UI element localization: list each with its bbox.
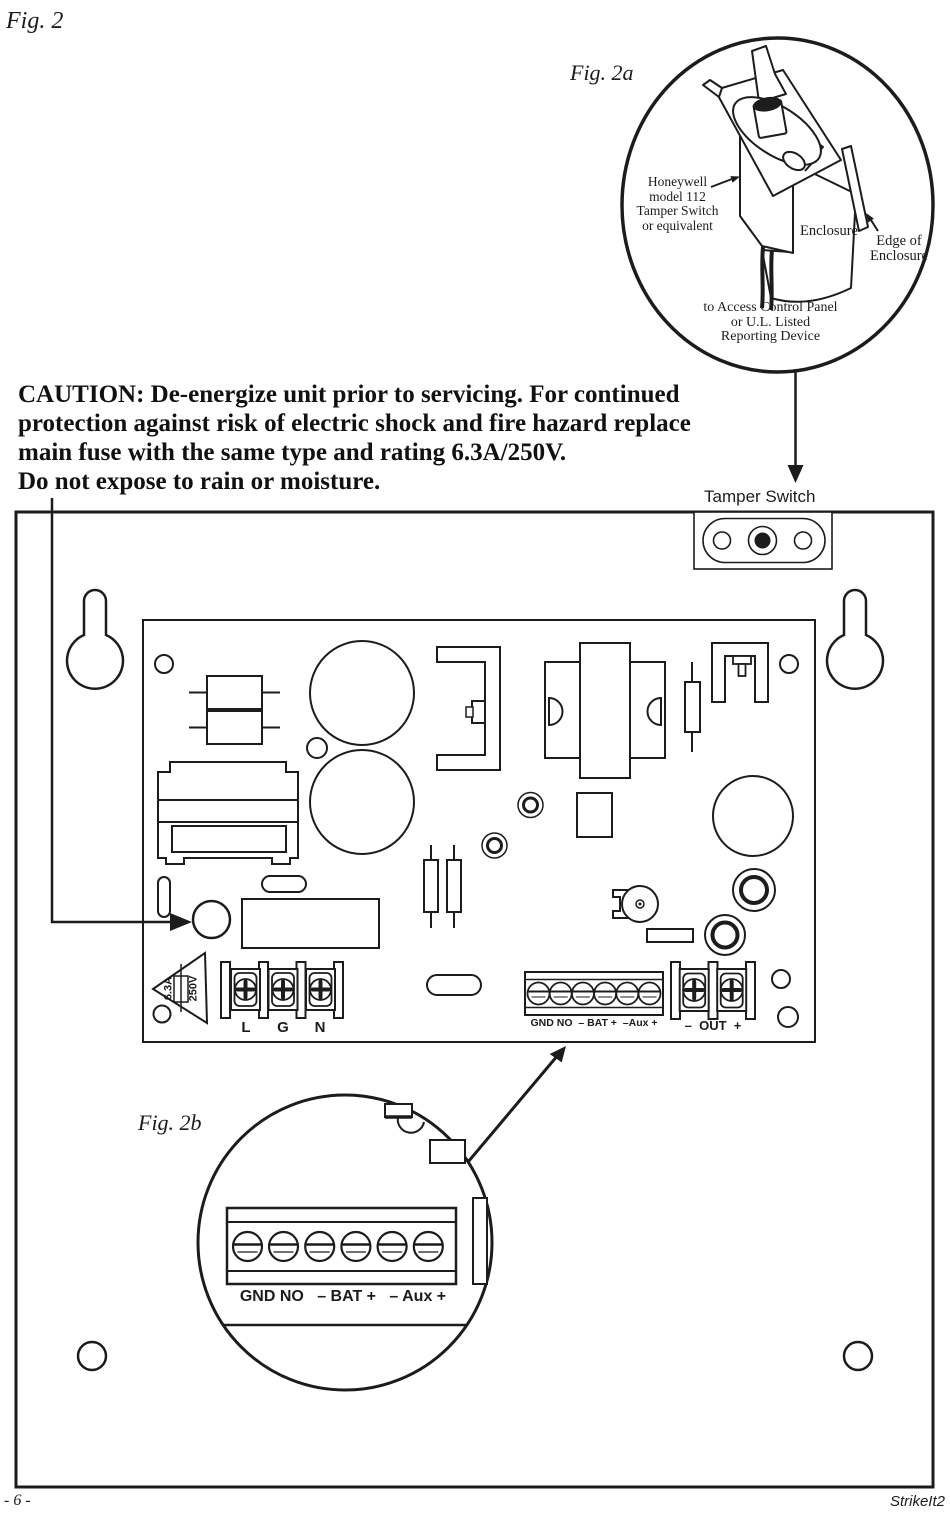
circuit-board: [143, 620, 815, 1042]
fuse-amps-label: 6.3A: [163, 969, 176, 1009]
wire-destination-note: to Access Control Panel or U.L. Listed R…: [688, 301, 853, 345]
enclosure-label: Enclosure: [800, 223, 858, 240]
fig2b-terminal-strip: [227, 1198, 487, 1284]
fuse-volts-label: 250V: [188, 969, 201, 1009]
transformer-main: [545, 643, 665, 778]
screw-terminal-L: [231, 969, 260, 1010]
caution-line-4: Do not expose to rain or moisture.: [18, 467, 808, 496]
terminal-label-n: N: [312, 1019, 328, 1036]
caution-line-3: main fuse with the same type and rating …: [18, 438, 808, 467]
switch-wire-1: [762, 247, 763, 308]
out-strip-label: – OUT +: [678, 1018, 748, 1033]
page-number: - 6 -: [4, 1492, 31, 1510]
screw-terminal-out-minus: [680, 969, 709, 1011]
transformer-left: [158, 762, 298, 864]
relay: [242, 899, 379, 948]
ic-component: [577, 793, 612, 837]
fig2a-caption: Fig. 2a: [570, 60, 634, 86]
switch-plunger: [752, 95, 787, 138]
out-terminal-block: [671, 962, 755, 1019]
potentiometer: [613, 886, 658, 922]
screw-terminal-G: [269, 969, 298, 1010]
caution-text: CAUTION: De-energize unit prior to servi…: [18, 380, 808, 496]
terminal-label-g: G: [275, 1019, 291, 1036]
terminal-label-l: L: [238, 1019, 254, 1036]
edge-of-enclosure-label: Edge of Enclosure: [860, 234, 938, 264]
fig2-caption: Fig. 2: [6, 8, 63, 35]
capacitor-large-3: [713, 776, 793, 856]
caution-line-2: protection against risk of electric shoc…: [18, 409, 808, 438]
capacitor-large-1: [310, 641, 414, 745]
screw-terminal-N: [306, 969, 335, 1010]
dc-terminal-strip: [525, 972, 663, 1015]
tamper-switch-top-view: [694, 512, 832, 569]
fig2b-caption: Fig. 2b: [138, 1110, 202, 1136]
capacitor-large-2: [310, 750, 414, 854]
main-fuse: [193, 901, 230, 938]
manual-page: Fig. 2 Fig. 2a CAUTION: De-energize unit…: [0, 0, 950, 1514]
dc-strip-label: GND NO – BAT + –Aux +: [524, 1017, 664, 1029]
caution-line-1: CAUTION: De-energize unit prior to servi…: [18, 380, 808, 409]
mains-terminal-block: [221, 962, 343, 1018]
tamper-plunger-dot: [755, 533, 771, 549]
fig2b-strip-label: GND NO – BAT + – Aux +: [228, 1288, 458, 1306]
doc-code: StrikeIt2: [830, 1493, 945, 1510]
panel-screw-hole-right: [844, 1342, 872, 1370]
screw-terminal-out-plus: [717, 969, 746, 1011]
panel-screw-hole-left: [78, 1342, 106, 1370]
honeywell-note: Honeywell model 112 Tamper Switch or equ…: [625, 175, 730, 233]
tamper-switch-label: Tamper Switch: [704, 487, 815, 507]
